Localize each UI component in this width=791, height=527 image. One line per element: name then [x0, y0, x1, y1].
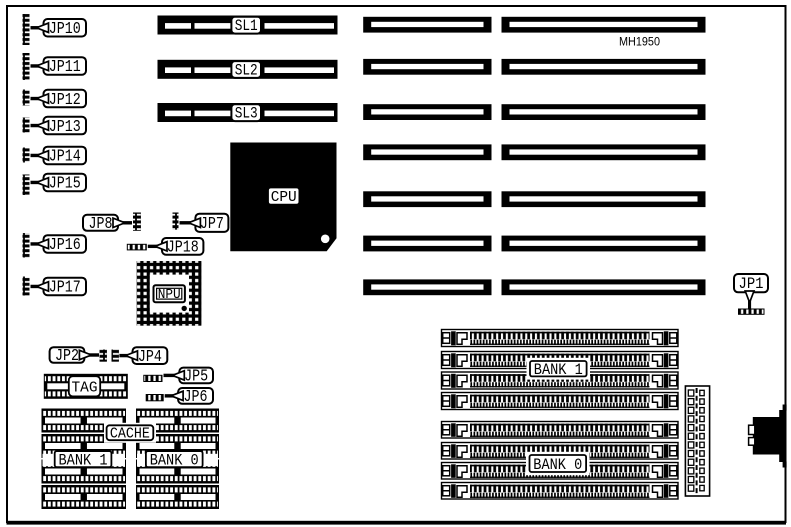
svg-text:JP13: JP13 — [49, 117, 81, 136]
svg-text:JP10: JP10 — [49, 19, 81, 38]
svg-text:JP2: JP2 — [55, 346, 79, 365]
svg-text:JP14: JP14 — [49, 147, 81, 166]
svg-text:NPU: NPU — [158, 287, 181, 303]
svg-text:JP15: JP15 — [49, 174, 81, 193]
svg-text:SL1: SL1 — [235, 17, 258, 35]
svg-text:JP5: JP5 — [184, 367, 208, 386]
svg-text:JP4: JP4 — [138, 347, 162, 366]
svg-text:JP17: JP17 — [49, 278, 81, 297]
svg-text:CPU: CPU — [271, 189, 297, 206]
svg-text:JP8: JP8 — [89, 214, 113, 233]
svg-text:JP18: JP18 — [167, 238, 199, 257]
svg-text:MH1950: MH1950 — [619, 37, 660, 49]
svg-text:JP1: JP1 — [739, 275, 764, 293]
svg-text:JP12: JP12 — [49, 90, 81, 109]
svg-text:SL3: SL3 — [235, 105, 258, 123]
svg-text:JP11: JP11 — [49, 57, 81, 76]
svg-text:JP16: JP16 — [49, 235, 81, 254]
svg-text:JP7: JP7 — [200, 214, 224, 233]
svg-text:CACHE: CACHE — [110, 426, 150, 443]
svg-text:JP6: JP6 — [184, 387, 208, 406]
svg-text:BANK 0: BANK 0 — [150, 451, 199, 469]
svg-text:BANK 1: BANK 1 — [59, 451, 108, 469]
svg-text:TAG: TAG — [72, 380, 98, 397]
svg-text:BANK 1: BANK 1 — [534, 361, 583, 379]
svg-text:BANK 0: BANK 0 — [533, 456, 582, 474]
svg-text:SL2: SL2 — [235, 62, 258, 80]
